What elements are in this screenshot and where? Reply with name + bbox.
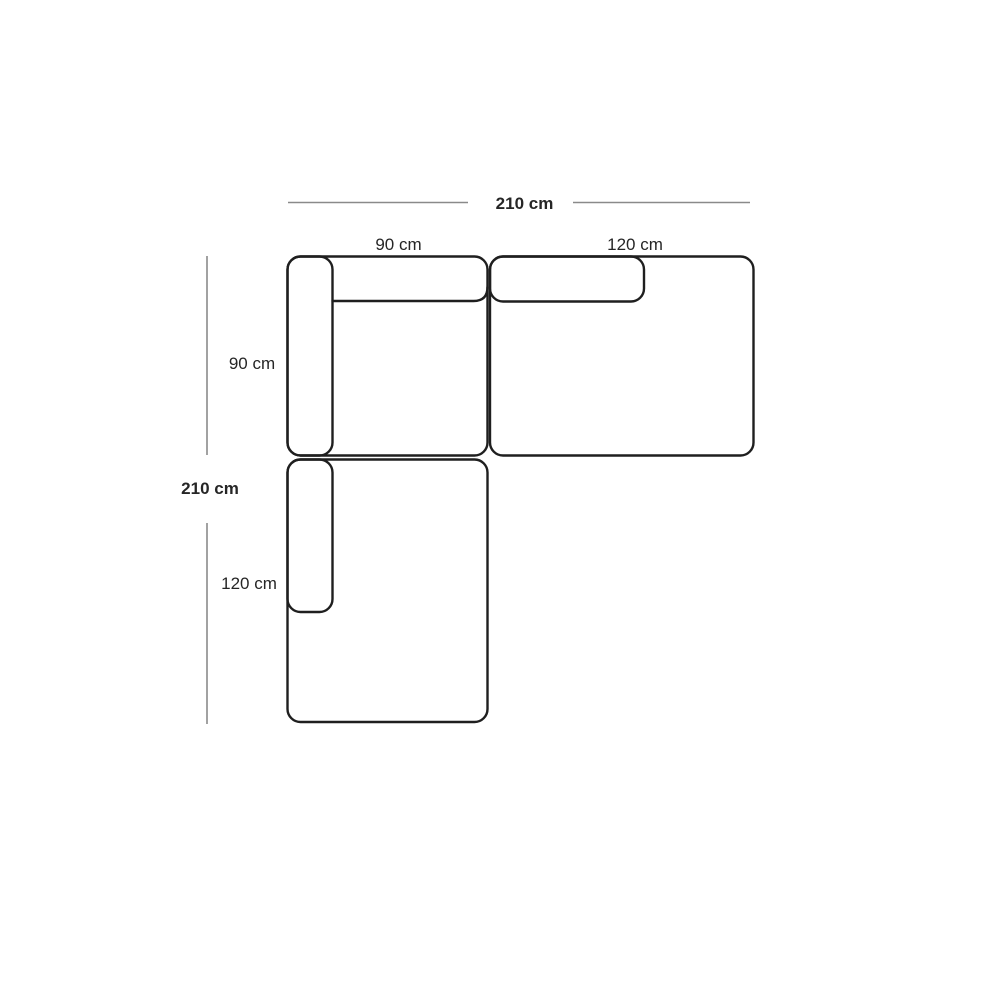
corner-module-outline — [288, 257, 488, 456]
dimension-labels-group: 210 cm 90 cm 120 cm 210 cm 90 cm 120 cm — [181, 194, 663, 593]
chaise-module-length-label: 120 cm — [221, 574, 277, 593]
right-module-backrest — [490, 257, 644, 302]
seat-module-width-label: 90 cm — [375, 235, 421, 254]
right-module-width-label: 120 cm — [607, 235, 663, 254]
total-depth-label: 210 cm — [181, 479, 239, 498]
total-width-label: 210 cm — [496, 194, 554, 213]
corner-module-backrest — [333, 287, 488, 301]
right-module-outline — [490, 257, 754, 456]
seat-module-depth-label: 90 cm — [229, 354, 275, 373]
chaise-module-outline — [288, 460, 488, 723]
chaise-module-armrest — [288, 460, 333, 613]
sofa-dimension-diagram-page: 210 cm 90 cm 120 cm 210 cm 90 cm 120 cm — [0, 0, 1000, 1000]
corner-module-armrest — [288, 257, 333, 456]
sofa-dimension-diagram: 210 cm 90 cm 120 cm 210 cm 90 cm 120 cm — [0, 0, 1000, 1000]
sofa-outline-group — [288, 257, 754, 723]
